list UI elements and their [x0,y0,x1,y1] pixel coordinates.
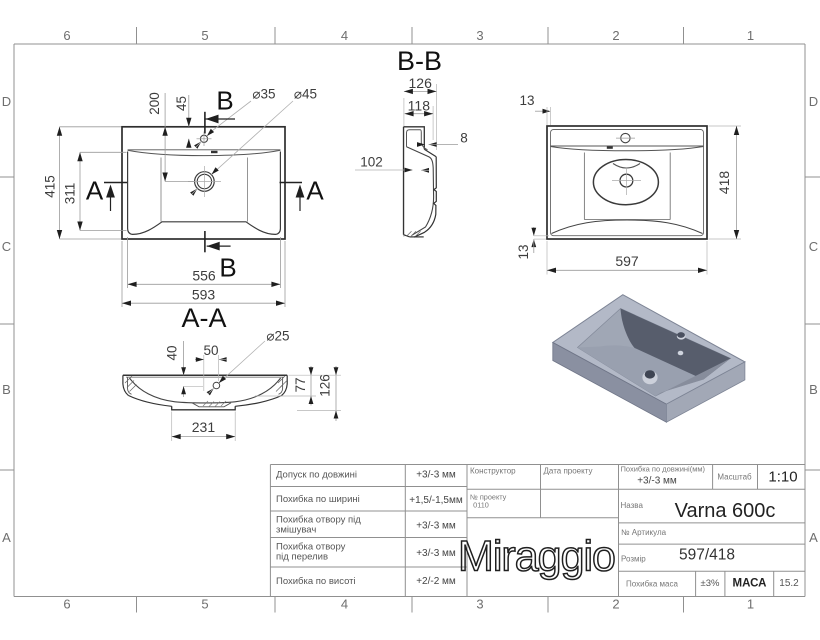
svg-text:+2/-2 мм: +2/-2 мм [416,576,456,587]
svg-text:231: 231 [192,419,216,435]
svg-text:A: A [86,176,104,206]
svg-text:418: 418 [716,171,732,195]
svg-text:4: 4 [341,28,348,43]
svg-text:A-A: A-A [181,303,226,333]
svg-text:6: 6 [63,28,70,43]
svg-text:50: 50 [203,343,218,358]
svg-text:415: 415 [43,175,58,198]
svg-text:D: D [2,94,11,109]
svg-text:126: 126 [409,75,433,91]
svg-text:40: 40 [165,345,180,360]
svg-text:118: 118 [408,98,431,114]
svg-text:0110: 0110 [473,501,489,510]
svg-text:15.2: 15.2 [779,578,799,589]
svg-text:B-B: B-B [397,46,442,76]
svg-text:+3/-3 мм: +3/-3 мм [637,476,677,487]
svg-text:Допуск по довжині: Допуск по довжині [276,470,357,481]
svg-text:Конструктор: Конструктор [470,467,516,476]
svg-text:B: B [216,86,233,116]
svg-text:A: A [2,530,11,545]
svg-text:2: 2 [612,28,619,43]
svg-text:1:10: 1:10 [768,469,797,486]
svg-text:6: 6 [63,597,70,612]
svg-text:4: 4 [341,597,348,612]
svg-text:C: C [2,239,11,254]
svg-text:+3/-3 мм: +3/-3 мм [416,548,456,559]
svg-text:+1,5/-1,5мм: +1,5/-1,5мм [409,495,463,506]
svg-text:Похибка по ширині: Похибка по ширині [276,494,360,505]
svg-text:597/418: 597/418 [679,547,735,564]
svg-text:МАСА: МАСА [733,578,767,590]
svg-text:A: A [809,530,818,545]
svg-text:1: 1 [747,597,754,612]
svg-text:556: 556 [192,268,216,284]
svg-text:77: 77 [293,377,308,392]
svg-text:Miraggio: Miraggio [458,533,615,581]
svg-text:⌀45: ⌀45 [294,87,317,102]
svg-text:1: 1 [747,28,754,43]
svg-text:⌀35: ⌀35 [252,87,275,102]
svg-text:змішувач: змішувач [276,525,316,536]
svg-text:8: 8 [460,131,468,146]
svg-text:3: 3 [476,597,483,612]
svg-text:+3/-3 мм: +3/-3 мм [416,521,456,532]
svg-text:під перелив: під перелив [276,552,328,563]
svg-text:311: 311 [63,183,78,205]
svg-text:597: 597 [615,253,639,269]
svg-text:A: A [306,176,324,206]
svg-text:Похибка маса: Похибка маса [626,580,678,589]
svg-text:Похибка по довжині(мм): Похибка по довжині(мм) [621,465,706,474]
svg-text:Масштаб: Масштаб [717,473,752,482]
svg-text:593: 593 [192,287,216,303]
svg-text:Розмір: Розмір [621,555,646,564]
svg-text:3: 3 [476,28,483,43]
svg-text:±3%: ±3% [701,578,720,589]
svg-text:B: B [2,382,11,397]
svg-text:13: 13 [519,93,534,108]
svg-text:B: B [809,382,818,397]
svg-text:13: 13 [516,244,531,259]
svg-text:D: D [809,94,818,109]
svg-text:Дата проекту: Дата проекту [544,467,593,476]
svg-text:102: 102 [360,155,383,170]
svg-text:126: 126 [318,374,333,397]
svg-text:45: 45 [174,96,189,111]
svg-text:Назва: Назва [621,501,644,510]
svg-text:C: C [809,239,818,254]
svg-text:+3/-3 мм: +3/-3 мм [416,470,456,481]
svg-text:Varna 600c: Varna 600c [675,500,776,522]
svg-text:⌀25: ⌀25 [266,329,289,344]
svg-text:2: 2 [612,597,619,612]
svg-text:200: 200 [147,92,162,115]
svg-text:B: B [219,253,236,283]
svg-text:№ Артикула: № Артикула [621,528,667,537]
svg-text:5: 5 [201,28,208,43]
svg-text:Похибка по висоті: Похибка по висоті [276,576,356,587]
svg-text:5: 5 [201,597,208,612]
